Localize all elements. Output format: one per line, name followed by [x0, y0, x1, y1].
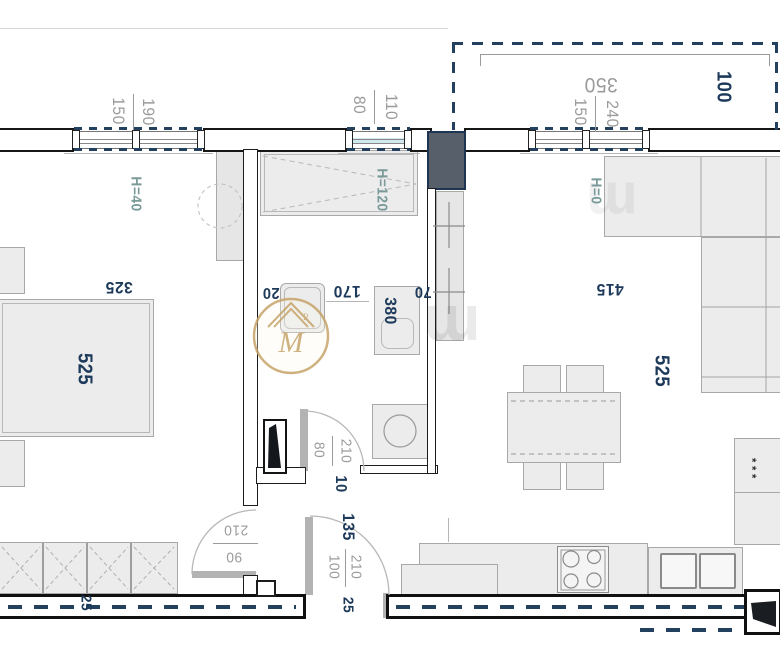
dim-door-height: 210: [338, 439, 355, 463]
dim-balcony-width: 350: [584, 72, 618, 96]
dim-balcony-depth: 100: [712, 71, 735, 103]
dim-door-height: 210: [348, 555, 365, 579]
stove-burners: [561, 550, 605, 590]
shower-drain-circle: [384, 415, 416, 447]
slope-hatch: [263, 184, 416, 212]
dim-living-length: 525: [650, 355, 673, 387]
radiator-wedge: [268, 424, 281, 468]
dim-living-width: 415: [596, 279, 623, 299]
dim-window-height: 190: [138, 98, 158, 125]
dim-wall-thickness: 20: [262, 283, 279, 301]
dim-bathroom-width: 170: [333, 281, 360, 301]
dim-hall-width: 135: [338, 513, 358, 540]
freezer-star-rating: ***: [745, 458, 759, 482]
dim-bedroom-length: 525: [73, 353, 96, 385]
floor-plan-canvas: M R m m 150 190 80 110 350 150 240 100 H…: [0, 0, 780, 665]
dim-window-height: 240: [602, 100, 622, 127]
dim-wall-thickness: 10: [331, 475, 349, 492]
watermark-registered: R: [303, 312, 309, 322]
dim-window-height: 110: [381, 94, 401, 120]
dim-door-height: 210: [224, 522, 248, 539]
dim-wall-thickness: 25: [78, 595, 95, 611]
dim-bathroom-length: 380: [380, 297, 400, 324]
faint-watermark-text: m: [424, 291, 481, 365]
slope-hatch: [263, 156, 416, 184]
dim-door-width: 100: [326, 555, 343, 579]
ceiling-height-label: H=120: [374, 168, 391, 211]
dim-window-width: 80: [349, 96, 369, 114]
dim-bedroom-width: 325: [105, 277, 132, 297]
dim-window-width: 150: [570, 98, 590, 125]
sofa-section-lines: [701, 157, 780, 392]
bedroom-door-arc: [192, 510, 256, 574]
ceiling-height-label: H=0: [588, 177, 605, 204]
corner-wedge: [751, 601, 776, 627]
dim-wall-thickness: 25: [340, 597, 357, 613]
dim-strip-width: 70: [414, 282, 431, 300]
watermark-letter: M: [278, 326, 306, 359]
wardrobe-x-hatch: [2, 547, 174, 589]
skylight-dashed-circle: [198, 184, 242, 228]
dim-door-width: 80: [311, 442, 328, 458]
ceiling-height-label: H=40: [128, 176, 145, 211]
dim-door-width: 90: [226, 549, 242, 566]
dim-window-width: 150: [108, 97, 128, 124]
watermark-logo: M R: [254, 299, 328, 373]
